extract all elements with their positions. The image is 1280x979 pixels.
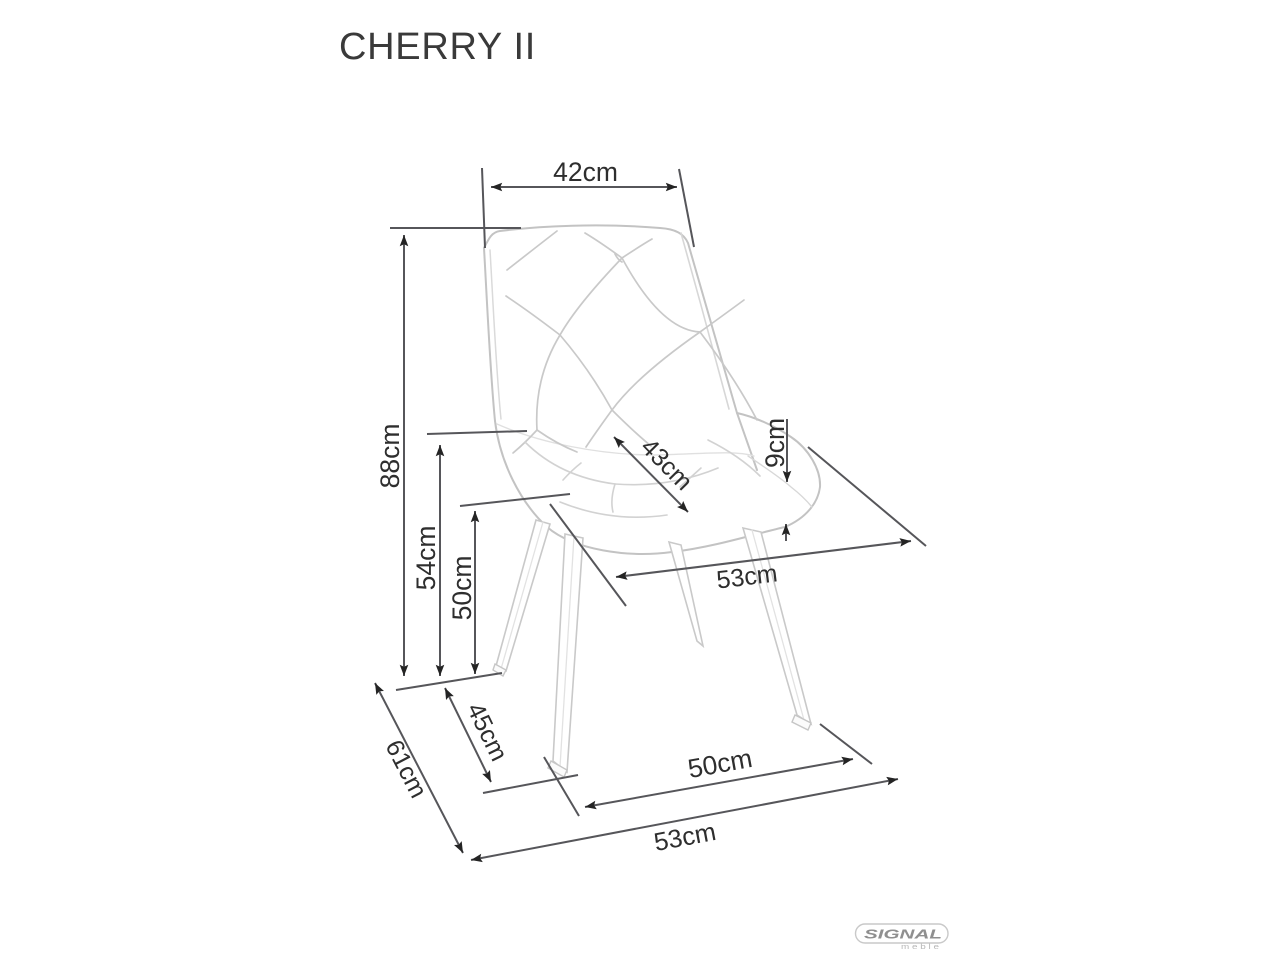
svg-text:88cm: 88cm: [375, 424, 405, 489]
svg-text:CHERRY II: CHERRY II: [339, 26, 536, 68]
svg-text:54cm: 54cm: [411, 526, 441, 591]
svg-text:50cm: 50cm: [447, 556, 477, 621]
svg-text:45cm: 45cm: [461, 698, 513, 765]
svg-text:61cm: 61cm: [380, 735, 433, 802]
svg-text:SIGNAL: SIGNAL: [864, 927, 942, 942]
svg-text:9cm: 9cm: [760, 418, 790, 468]
svg-text:42cm: 42cm: [553, 157, 618, 187]
svg-text:m e b l e: m e b l e: [901, 944, 939, 951]
svg-text:43cm: 43cm: [635, 433, 698, 496]
